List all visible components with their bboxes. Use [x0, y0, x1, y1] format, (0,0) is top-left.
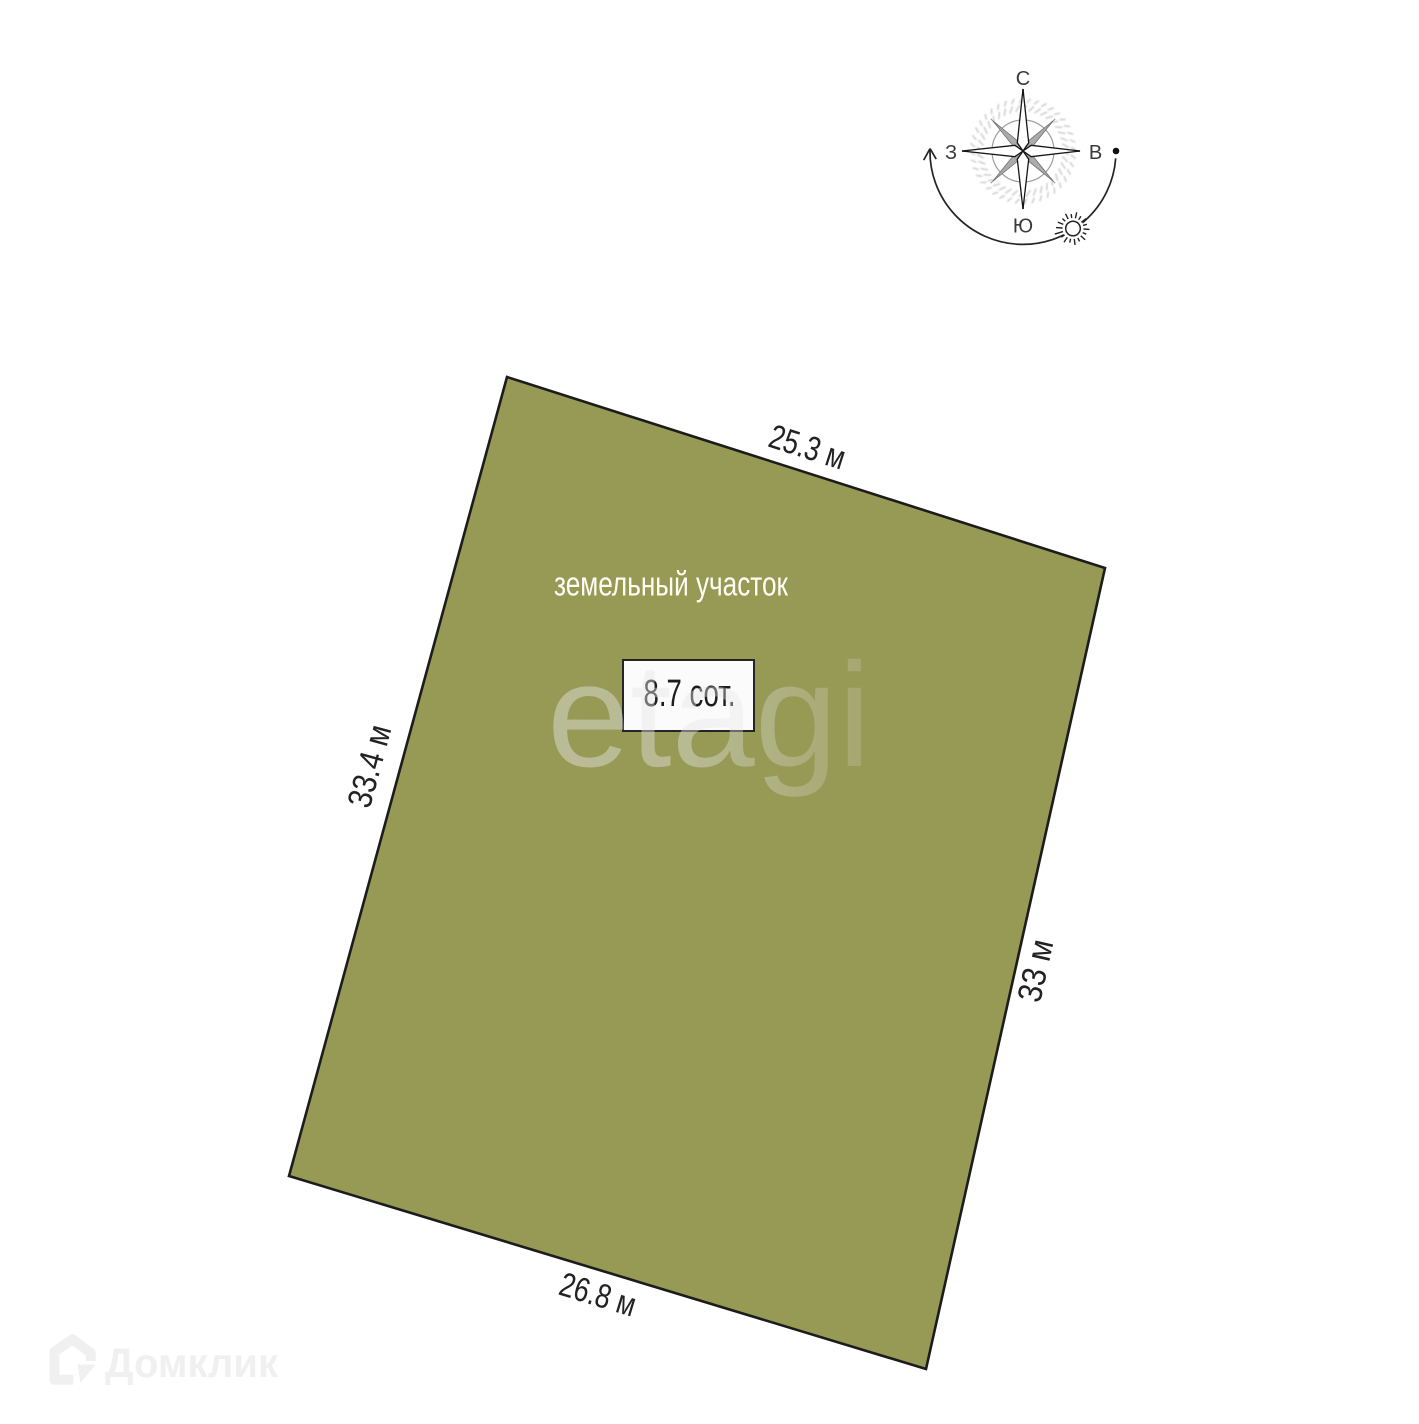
svg-text:etagi: etagi: [547, 633, 871, 798]
svg-text:С: С: [1016, 68, 1030, 90]
svg-text:В: В: [1089, 142, 1102, 164]
svg-text:земельный участок: земельный участок: [554, 566, 789, 604]
svg-text:Ю: Ю: [1013, 216, 1033, 238]
svg-text:Домклик: Домклик: [105, 1340, 278, 1386]
svg-text:З: З: [945, 142, 957, 164]
